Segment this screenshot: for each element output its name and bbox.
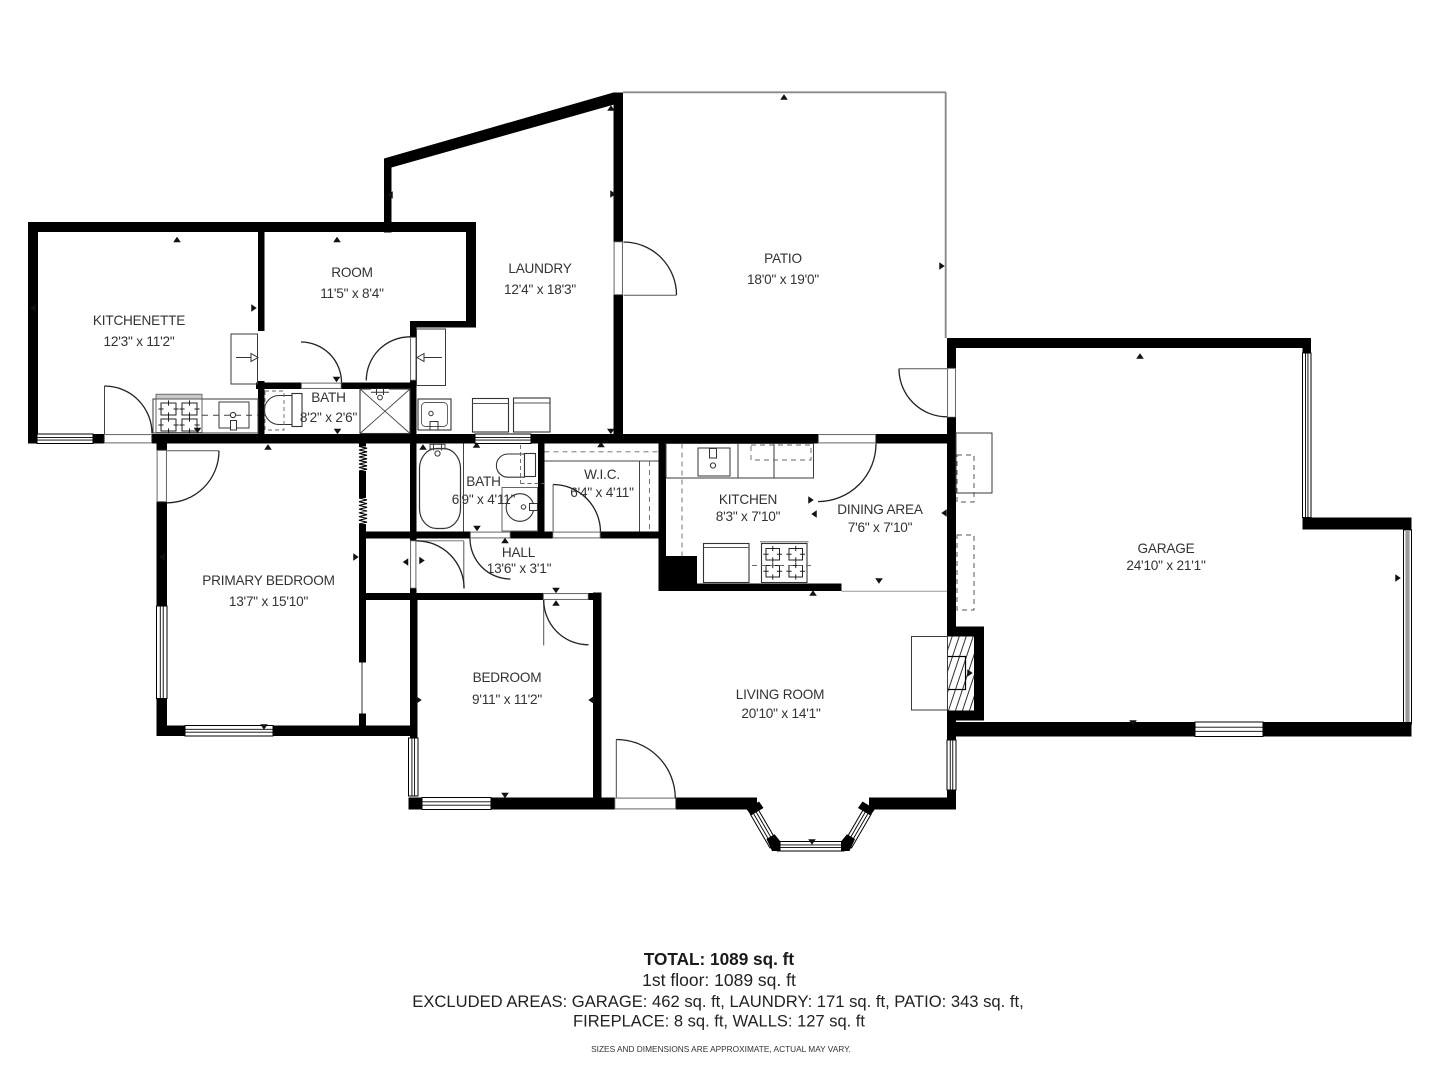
svg-text:1st floor: 1089 sq. ft: 1st floor: 1089 sq. ft [642, 970, 796, 990]
svg-text:9'11" x 11'2": 9'11" x 11'2" [472, 692, 542, 707]
svg-text:LIVING ROOM: LIVING ROOM [736, 687, 824, 702]
svg-text:SIZES AND DIMENSIONS ARE APPRO: SIZES AND DIMENSIONS ARE APPROXIMATE, AC… [591, 1044, 851, 1054]
svg-text:PATIO: PATIO [764, 251, 802, 266]
svg-text:LAUNDRY: LAUNDRY [508, 261, 571, 276]
svg-text:8'3" x 7'10": 8'3" x 7'10" [716, 509, 781, 524]
svg-text:24'10" x 21'1": 24'10" x 21'1" [1126, 558, 1206, 573]
svg-text:KITCHENETTE: KITCHENETTE [93, 313, 185, 328]
svg-text:12'4" x 18'3": 12'4" x 18'3" [504, 282, 576, 297]
svg-text:13'6" x 3'1": 13'6" x 3'1" [487, 561, 552, 576]
svg-text:EXCLUDED AREAS: GARAGE: 462 sq: EXCLUDED AREAS: GARAGE: 462 sq. ft, LAUN… [412, 992, 1023, 1011]
svg-text:FIREPLACE: 8 sq. ft, WALLS: 12: FIREPLACE: 8 sq. ft, WALLS: 127 sq. ft [573, 1013, 865, 1031]
svg-text:BATH: BATH [466, 474, 500, 489]
svg-text:KITCHEN: KITCHEN [719, 492, 777, 507]
svg-text:TOTAL: 1089 sq. ft: TOTAL: 1089 sq. ft [644, 949, 795, 969]
svg-text:HALL: HALL [502, 545, 536, 560]
svg-text:BEDROOM: BEDROOM [473, 670, 542, 685]
svg-text:GARAGE: GARAGE [1138, 541, 1195, 556]
svg-text:W.I.C.: W.I.C. [584, 467, 620, 482]
svg-text:BATH: BATH [311, 390, 345, 405]
svg-text:6'4" x 4'11": 6'4" x 4'11" [570, 485, 634, 500]
svg-text:6'9" x 4'11": 6'9" x 4'11" [452, 492, 516, 507]
svg-text:20'10" x 14'1": 20'10" x 14'1" [741, 706, 821, 721]
svg-text:DINING AREA: DINING AREA [837, 502, 924, 517]
svg-text:8'2" x 2'6": 8'2" x 2'6" [300, 410, 358, 425]
svg-text:PRIMARY BEDROOM: PRIMARY BEDROOM [202, 573, 334, 588]
svg-text:7'6" x 7'10": 7'6" x 7'10" [848, 520, 913, 535]
svg-text:18'0" x 19'0": 18'0" x 19'0" [747, 272, 819, 287]
svg-text:12'3" x 11'2": 12'3" x 11'2" [104, 334, 175, 349]
svg-text:11'5" x 8'4": 11'5" x 8'4" [320, 286, 384, 301]
svg-text:ROOM: ROOM [331, 265, 373, 280]
svg-text:13'7" x 15'10": 13'7" x 15'10" [229, 594, 309, 609]
